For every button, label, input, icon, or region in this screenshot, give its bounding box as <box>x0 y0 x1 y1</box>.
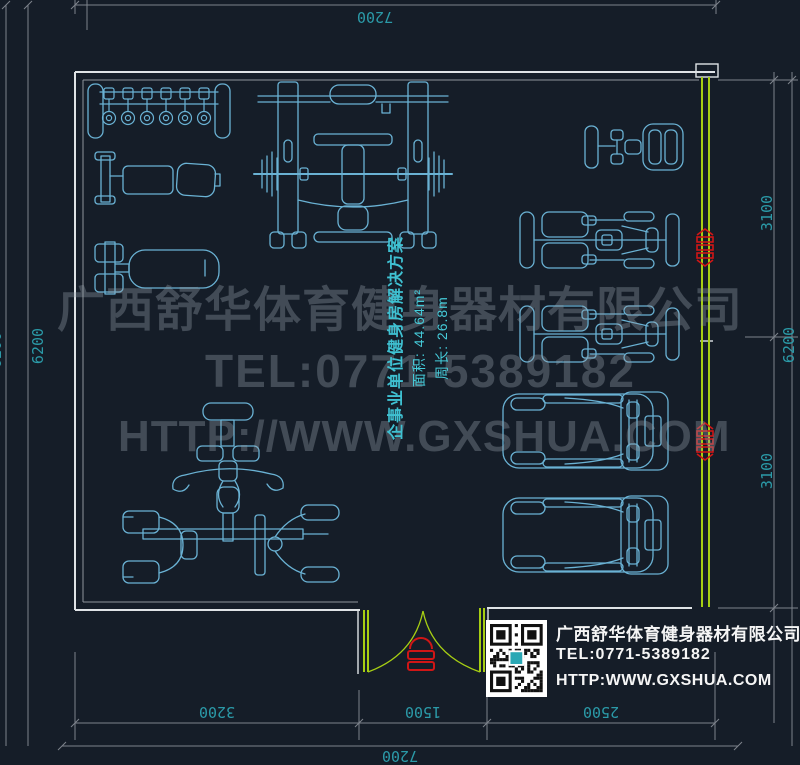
dim-left-outer: 6200 <box>0 320 4 380</box>
room-label: 企事业单位健身房解决方案 面积: 44.64m² 周长: 26.8m <box>317 238 517 438</box>
dim-bottom-total: 7200 <box>370 748 430 764</box>
info-tel: TEL:0771-5389182 <box>556 646 711 664</box>
dim-top-total: 7200 <box>345 9 405 25</box>
wall-marker-top <box>697 229 713 266</box>
door-marker <box>408 638 434 670</box>
dim-bottom-seg-mid: 1500 <box>393 704 453 720</box>
room-label-perimeter: 周长: 26.8m <box>432 296 452 380</box>
dim-right-seg-bottom: 3100 <box>759 441 775 501</box>
equipment-recumbent-bike-1 <box>520 212 679 268</box>
dim-bottom-seg-right: 2500 <box>571 704 631 720</box>
info-company: 广西舒华体育健身器材有限公司 <box>556 620 800 645</box>
equipment-dumbbell-rack <box>88 84 230 138</box>
equipment-adjustable-bench <box>95 152 220 204</box>
room-label-title: 企事业单位健身房解决方案 <box>382 236 406 440</box>
dim-right-total: 6200 <box>781 315 797 375</box>
dim-bottom-seg-left: 3200 <box>187 704 247 720</box>
equipment-upright-bike <box>585 124 683 170</box>
room-label-area: 面积: 44.64m² <box>409 289 429 387</box>
qr-code-icon <box>486 620 547 697</box>
dim-left-inner: 6200 <box>30 316 46 376</box>
equipment-smith-machine <box>254 82 452 248</box>
dim-right-seg-top: 3100 <box>759 183 775 243</box>
info-url: HTTP:WWW.GXSHUA.COM <box>556 672 772 690</box>
equipment-treadmill-2 <box>503 496 668 574</box>
